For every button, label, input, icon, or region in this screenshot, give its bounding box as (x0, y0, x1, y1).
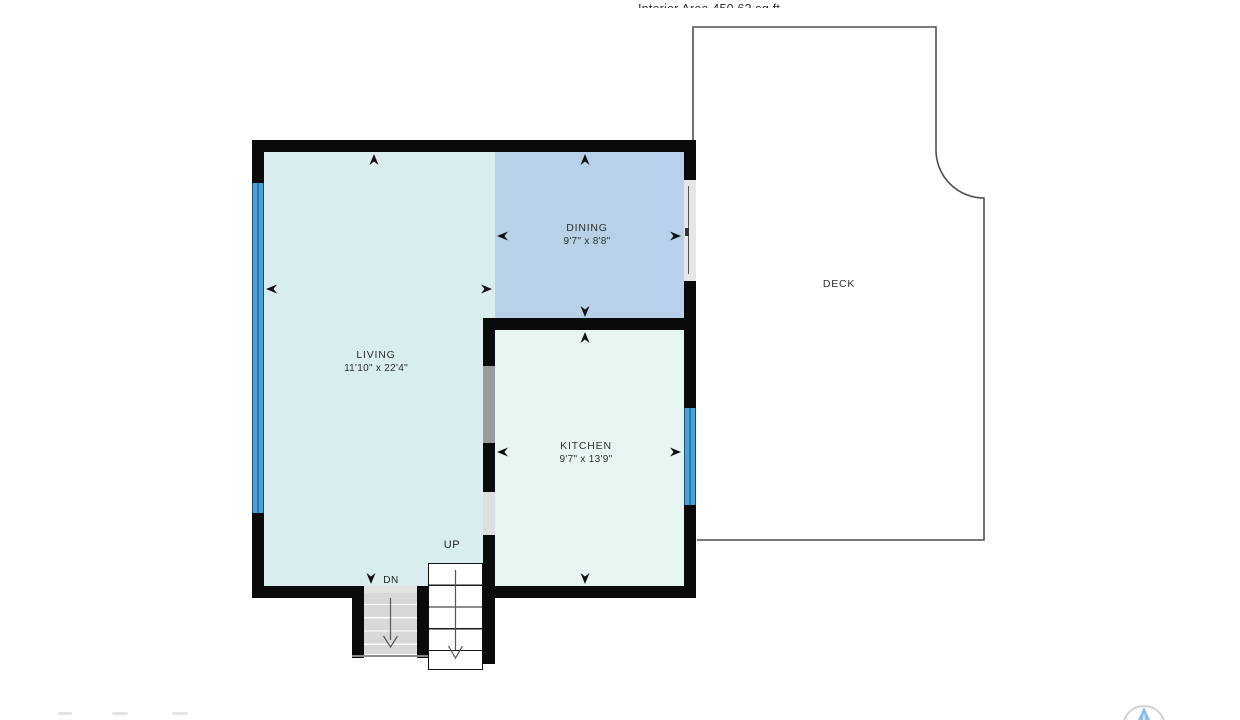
dn-stairs-label: DN (376, 575, 406, 586)
up-stairs-label: UP (432, 539, 472, 551)
wall-bottom-left (252, 586, 364, 598)
kitchen-dims: 9'7" x 13'9" (506, 453, 666, 466)
sliding-door-dining-icon (684, 180, 696, 281)
stairs-down (364, 592, 417, 654)
deck-label: DECK (779, 278, 899, 291)
logo-icon (1123, 706, 1165, 720)
living-dims: 11'10" x 22'4" (296, 362, 456, 375)
interior-area-text: Interior Area 450.63 sq ft (638, 2, 780, 8)
window-living-left-icon (252, 183, 264, 513)
opening-dn-stairs-icon (364, 585, 417, 593)
door-living-kitchen-icon (483, 366, 495, 443)
stairs-up (428, 563, 483, 670)
deck-name: DECK (779, 278, 899, 291)
watermark-marks (58, 712, 188, 715)
wall-bottom-right (495, 586, 696, 598)
living-name: LIVING (296, 349, 456, 362)
kitchen-name: KITCHEN (506, 440, 666, 453)
dining-label: DINING 9'7" x 8'8" (507, 222, 667, 248)
floorplan-page: Interior Area 450.63 sq ft (0, 0, 1240, 720)
dining-dims: 9'7" x 8'8" (507, 235, 667, 248)
stairs-down-base-line (352, 655, 429, 657)
wall-dining-kitchen (483, 318, 696, 330)
kitchen-label: KITCHEN 9'7" x 13'9" (506, 440, 666, 466)
wall-dn-stair-left (352, 586, 364, 658)
dining-name: DINING (507, 222, 667, 235)
interior-area-title: Interior Area 450.63 sq ft (509, 0, 909, 8)
sliding-door-handle (685, 228, 689, 236)
wall-top (252, 140, 696, 152)
window-kitchen-right-icon (684, 408, 696, 505)
opening-living-kitchen-icon (483, 492, 495, 535)
living-label: LIVING 11'10" x 22'4" (296, 349, 456, 375)
